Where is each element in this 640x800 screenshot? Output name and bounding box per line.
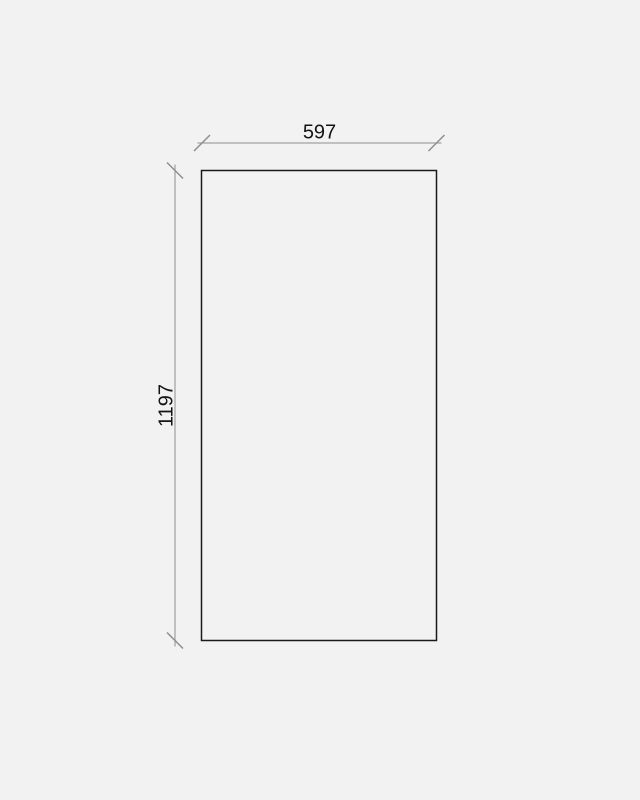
width-dimension-label: 597 <box>303 122 336 144</box>
drawing-canvas: 597 1197 <box>0 0 640 800</box>
panel-outline <box>202 171 437 641</box>
panel-dimension-drawing: 597 1197 <box>0 0 640 800</box>
height-dimension-label: 1197 <box>156 384 178 427</box>
width-dimension: 597 <box>194 122 445 152</box>
height-dimension: 1197 <box>156 163 184 649</box>
